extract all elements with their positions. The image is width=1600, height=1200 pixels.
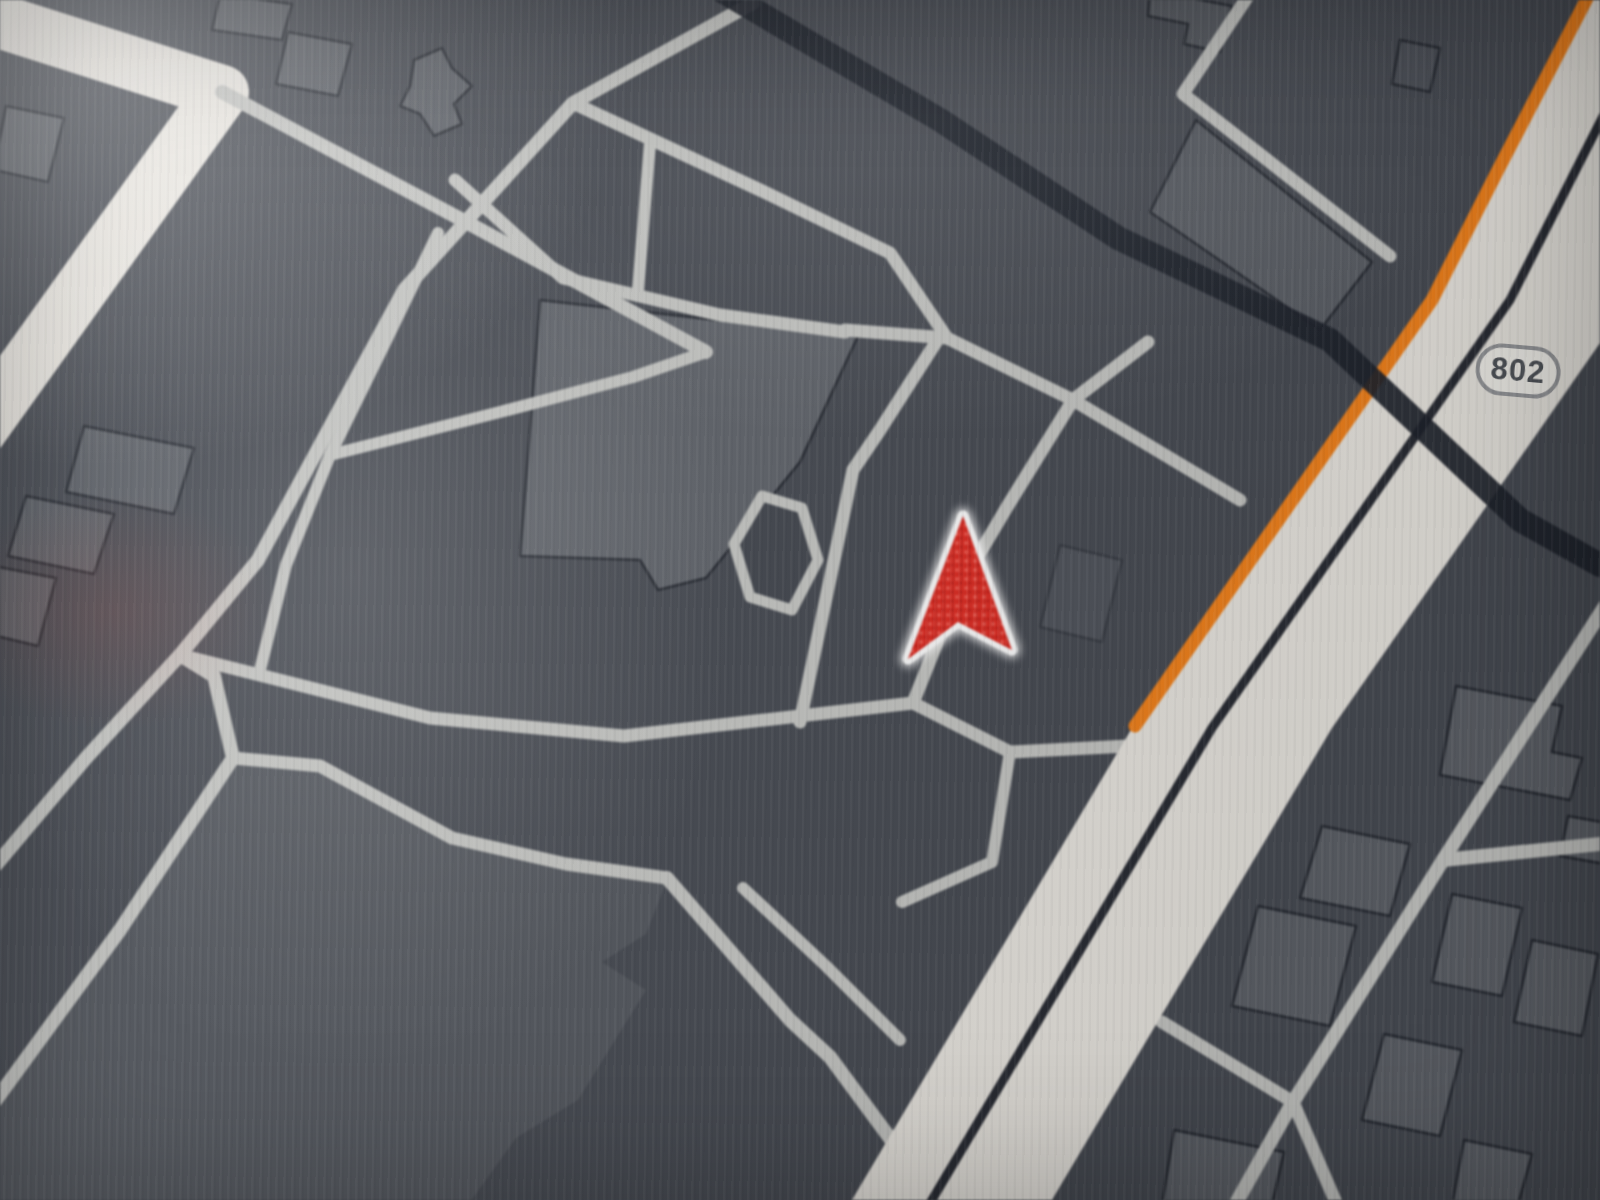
map-canvas[interactable] <box>0 0 1600 1200</box>
building-top-2 <box>276 32 352 96</box>
pond-loop <box>734 496 818 610</box>
building-topright-small <box>1392 40 1440 92</box>
route-shield-label: 802 <box>1489 351 1547 391</box>
navigation-map-screen: 802 <box>0 0 1600 1200</box>
